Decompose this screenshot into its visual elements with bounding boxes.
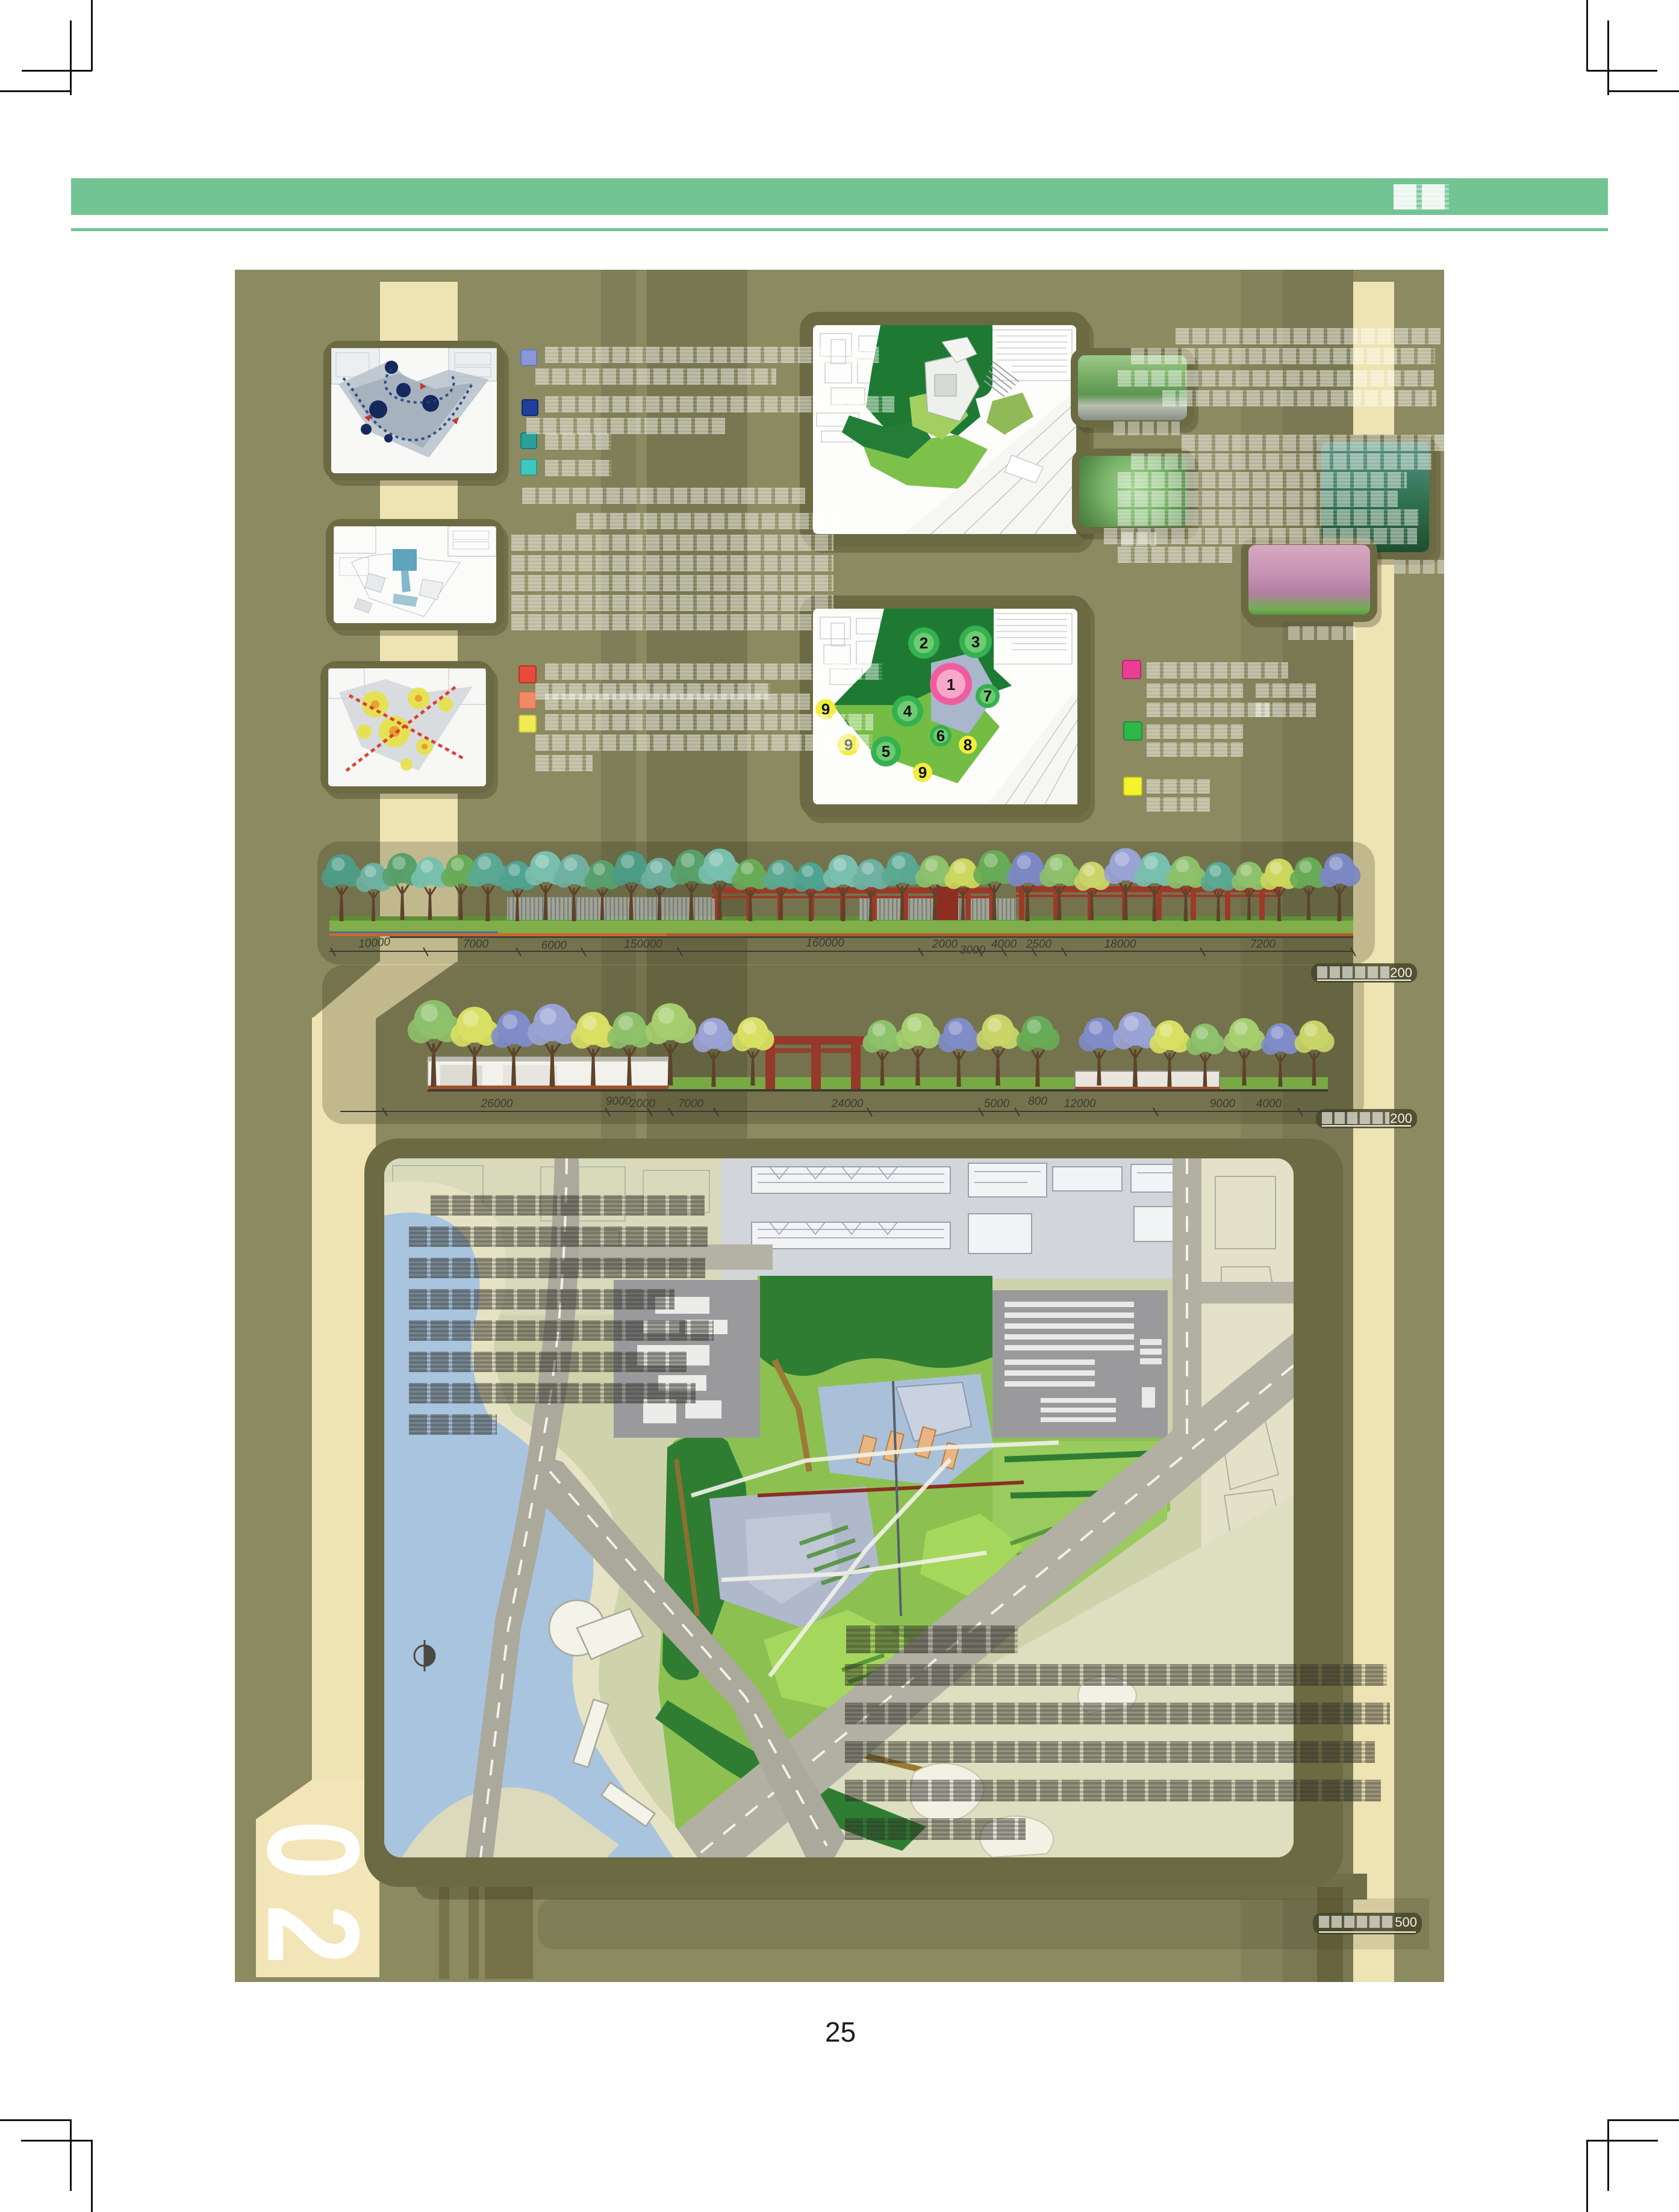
svg-text:9000: 9000 <box>606 1095 632 1108</box>
svg-text:6000: 6000 <box>541 939 567 952</box>
svg-text:2000: 2000 <box>932 938 958 951</box>
svg-text:9: 9 <box>918 763 927 781</box>
svg-text:6: 6 <box>936 727 945 745</box>
svg-text:7200: 7200 <box>1250 938 1276 951</box>
svg-text:7000: 7000 <box>678 1098 704 1110</box>
svg-text:160000: 160000 <box>806 937 844 949</box>
svg-text:9000: 9000 <box>1210 1098 1236 1110</box>
svg-text:2: 2 <box>920 634 928 652</box>
svg-text:7000: 7000 <box>463 938 489 951</box>
svg-text:10000: 10000 <box>358 936 391 951</box>
svg-text:800: 800 <box>1028 1095 1047 1108</box>
svg-text:1: 1 <box>947 676 955 694</box>
svg-text:12000: 12000 <box>1064 1098 1096 1110</box>
svg-text:4000: 4000 <box>1256 1098 1282 1110</box>
svg-text:2000: 2000 <box>629 1098 656 1110</box>
svg-text:26000: 26000 <box>481 1098 513 1110</box>
svg-text:150000: 150000 <box>624 938 662 951</box>
svg-text:5: 5 <box>882 742 890 760</box>
svg-text:7: 7 <box>983 687 992 705</box>
svg-text:3000: 3000 <box>960 944 986 957</box>
svg-text:18000: 18000 <box>1104 938 1136 951</box>
svg-text:4000: 4000 <box>991 938 1017 951</box>
svg-text:2500: 2500 <box>1026 938 1052 951</box>
svg-text:24000: 24000 <box>831 1098 864 1110</box>
svg-text:5000: 5000 <box>984 1098 1010 1110</box>
svg-text:3: 3 <box>971 633 980 651</box>
svg-text:4: 4 <box>903 702 912 720</box>
svg-text:8: 8 <box>964 736 972 754</box>
